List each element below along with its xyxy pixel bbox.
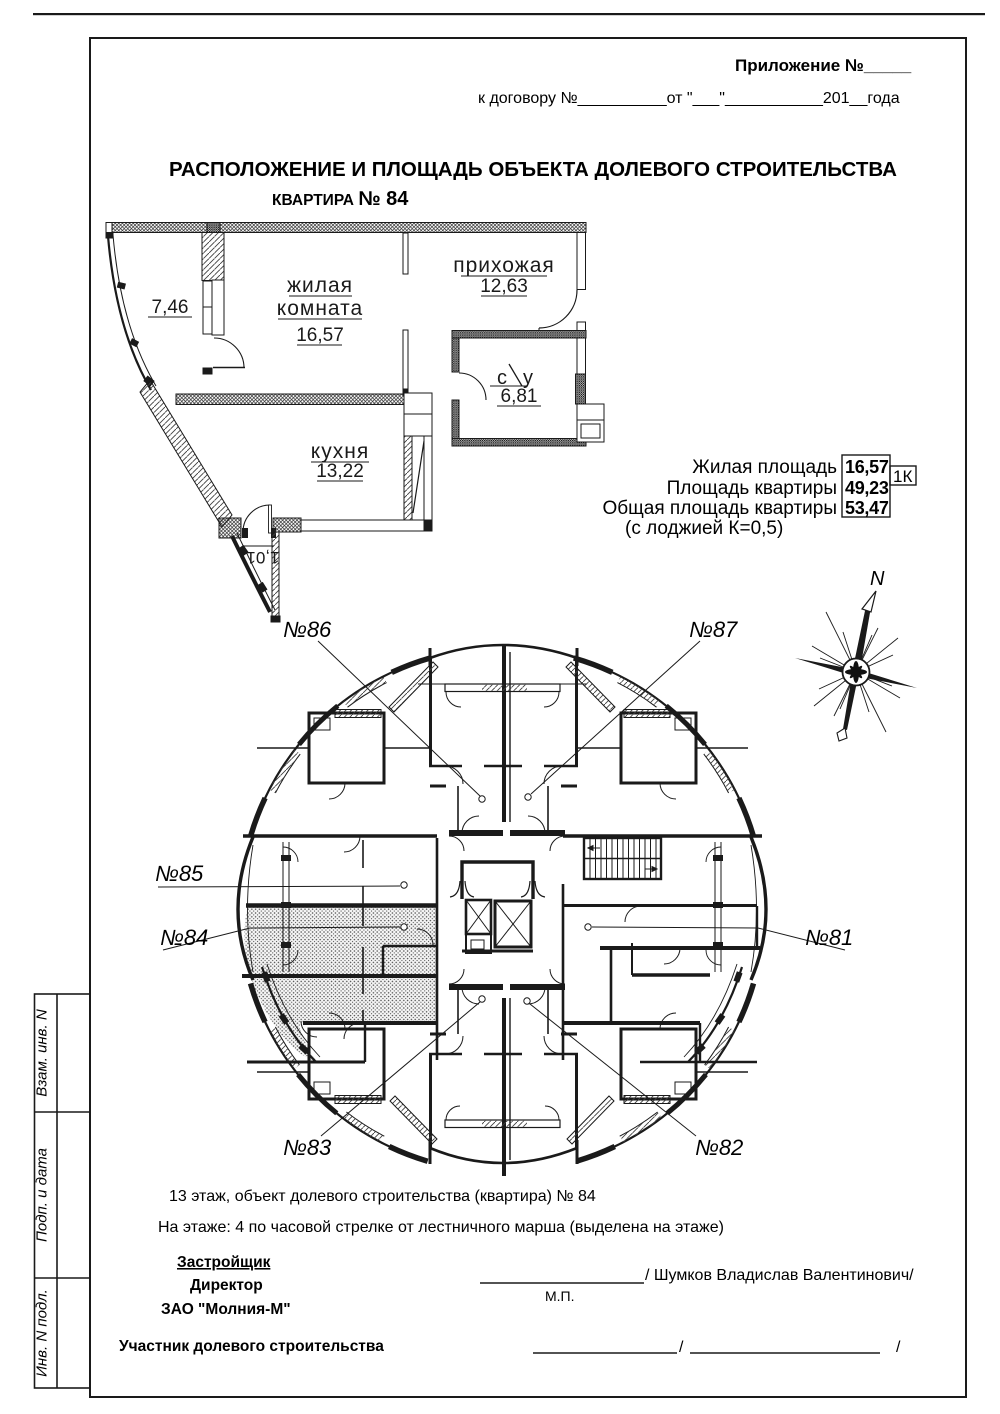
- svg-text:N: N: [870, 568, 885, 590]
- svg-text:1,01: 1,01: [246, 548, 279, 567]
- svg-text:№85: №85: [155, 861, 204, 886]
- svg-text:13,22: 13,22: [316, 461, 364, 482]
- svg-text:16,57: 16,57: [845, 457, 889, 477]
- svg-text:ЗАО "Молния-М": ЗАО "Молния-М": [161, 1301, 291, 1318]
- svg-text:к договору №__________от "___": к договору №__________от "___"__________…: [478, 90, 900, 107]
- svg-text:(с лоджией К=0,5): (с лоджией К=0,5): [625, 518, 783, 539]
- svg-text:/: /: [679, 1339, 684, 1356]
- svg-text:Площадь квартиры: Площадь квартиры: [667, 478, 837, 499]
- svg-text:Общая площадь квартиры: Общая площадь квартиры: [603, 498, 838, 519]
- svg-text:6,81: 6,81: [501, 386, 538, 407]
- svg-text:жилая: жилая: [287, 274, 353, 297]
- svg-text:№86: №86: [283, 617, 332, 642]
- svg-text:53,47: 53,47: [845, 498, 889, 518]
- svg-text:/ Шумков Владислав Валентинови: / Шумков Владислав Валентинович/: [645, 1267, 914, 1284]
- svg-text:Застройщик: Застройщик: [177, 1254, 271, 1271]
- svg-text:кухня: кухня: [311, 440, 369, 463]
- svg-text:Взам. инв. N: Взам. инв. N: [34, 1009, 51, 1097]
- svg-text:КВАРТИРА № 84: КВАРТИРА № 84: [272, 188, 409, 210]
- svg-text:№87: №87: [689, 617, 738, 642]
- svg-text:№83: №83: [283, 1135, 332, 1160]
- svg-text:№82: №82: [695, 1135, 743, 1160]
- svg-text:Жилая площадь: Жилая площадь: [692, 457, 837, 478]
- svg-text:49,23: 49,23: [845, 478, 889, 498]
- svg-text:1К: 1К: [893, 467, 912, 486]
- svg-text:12,63: 12,63: [480, 276, 528, 297]
- svg-text:прихожая: прихожая: [453, 254, 555, 277]
- svg-text:Директор: Директор: [190, 1277, 263, 1294]
- svg-text:13 этаж, объект долевого строи: 13 этаж, объект долевого строительства (…: [169, 1188, 596, 1205]
- svg-text:16,57: 16,57: [296, 325, 344, 346]
- svg-text:комната: комната: [277, 297, 363, 320]
- svg-text:/: /: [896, 1339, 901, 1356]
- svg-text:№81: №81: [805, 925, 853, 950]
- svg-text:РАСПОЛОЖЕНИЕ И ПЛОЩАДЬ ОБЪЕКТА: РАСПОЛОЖЕНИЕ И ПЛОЩАДЬ ОБЪЕКТА ДОЛЕВОГО …: [169, 158, 897, 181]
- svg-text:Участник долевого строительств: Участник долевого строительства: [119, 1338, 384, 1355]
- svg-text:На этаже: 4 по часовой стрелк: На этаже: 4 по часовой стрелке от лестни…: [158, 1219, 724, 1236]
- svg-text:Подп. и дата: Подп. и дата: [34, 1148, 51, 1242]
- svg-text:7,46: 7,46: [152, 297, 189, 318]
- svg-text:№84: №84: [160, 925, 208, 950]
- svg-text:Инв. N подл.: Инв. N подл.: [34, 1289, 51, 1377]
- svg-text:М.П.: М.П.: [545, 1288, 575, 1304]
- svg-text:Приложение №_____: Приложение №_____: [735, 56, 912, 75]
